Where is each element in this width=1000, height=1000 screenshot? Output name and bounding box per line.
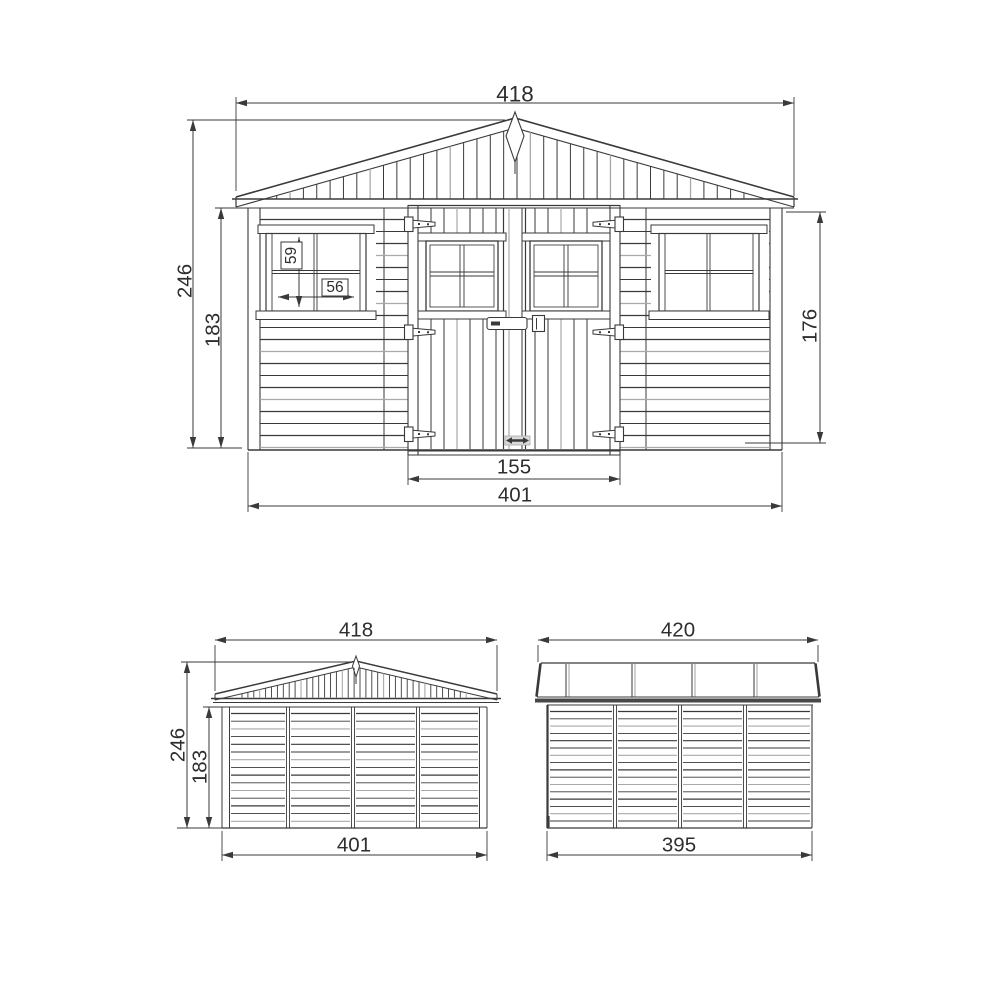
dim-label-front-overall-height: 246	[174, 264, 197, 298]
dim-label-window-height: 59	[283, 247, 300, 264]
shed-technical-drawing: 418 246 183 176 59 56 155 401 418 246 18…	[0, 0, 1000, 1000]
dim-label-side-base-length: 395	[662, 834, 696, 857]
dim-label-rear-overall-width: 418	[339, 619, 373, 642]
dim-label-front-overall-width: 418	[496, 82, 534, 107]
front-view: 418 246 183 176 59 56 155 401	[174, 82, 827, 513]
rear-geometry	[177, 637, 501, 861]
rear-view: 418 246 183 401	[167, 619, 502, 862]
dim-label-side-roof-length: 420	[661, 619, 695, 642]
shed-technical-drawing-page: 418 246 183 176 59 56 155 401 418 246 18…	[0, 0, 1000, 1000]
dim-label-front-base-width: 401	[498, 484, 532, 507]
dim-label-door-width: 155	[497, 456, 531, 479]
dim-label-rear-overall-height: 246	[167, 728, 190, 762]
dim-label-front-wall-height-left: 183	[202, 313, 225, 347]
dim-label-rear-wall-height: 183	[189, 750, 212, 784]
side-view: 420 395	[535, 619, 821, 862]
front-geometry	[187, 97, 826, 512]
dim-label-rear-base-width: 401	[337, 834, 371, 857]
dim-label-front-wall-height-right: 176	[799, 309, 822, 343]
dim-label-window-width: 56	[326, 279, 343, 296]
side-geometry	[535, 637, 821, 861]
